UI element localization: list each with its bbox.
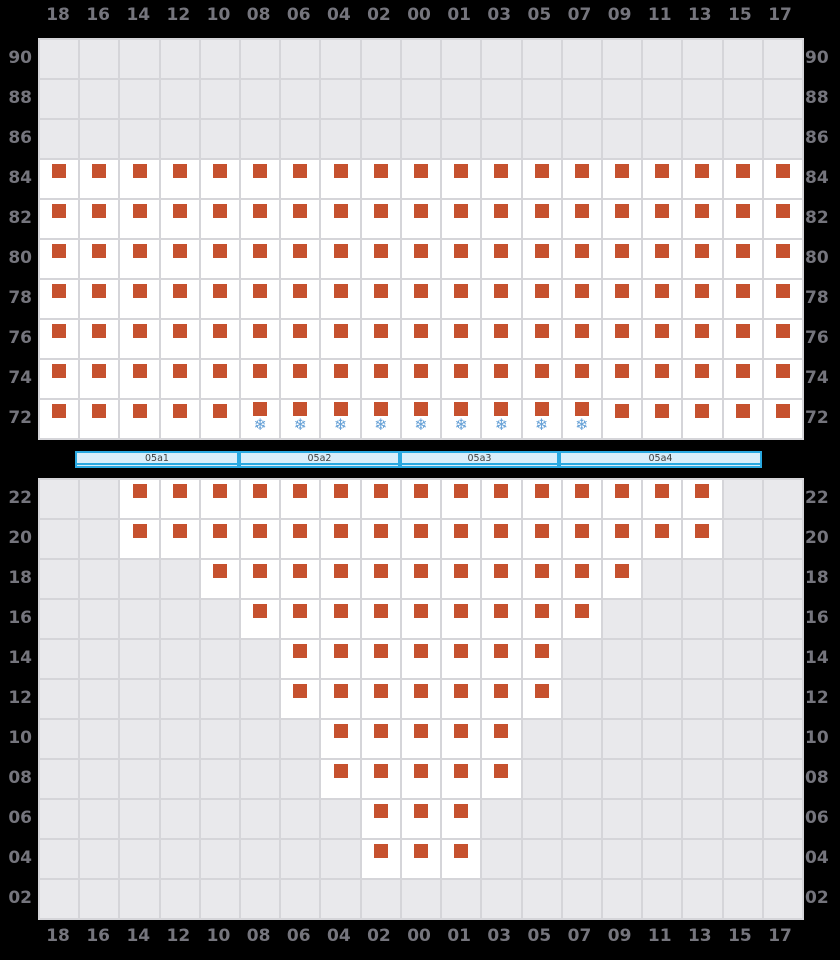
plot-marker xyxy=(293,364,307,378)
grid-cell[interactable] xyxy=(603,480,643,520)
grid-cell[interactable] xyxy=(362,760,402,800)
grid-cell[interactable] xyxy=(442,800,482,840)
grid-cell[interactable] xyxy=(482,240,522,280)
grid-cell[interactable] xyxy=(241,320,281,360)
grid-cell[interactable] xyxy=(201,240,241,280)
grid-cell[interactable] xyxy=(563,480,603,520)
grid-cell[interactable] xyxy=(241,280,281,320)
grid-cell[interactable] xyxy=(321,360,361,400)
grid-cell[interactable] xyxy=(281,200,321,240)
grid-cell xyxy=(563,720,603,760)
grid-cell xyxy=(281,800,321,840)
grid-cell[interactable] xyxy=(764,160,804,200)
grid-cell[interactable]: ❄ xyxy=(281,400,321,440)
grid-cell[interactable] xyxy=(241,480,281,520)
plot-marker xyxy=(52,204,66,218)
grid-cell[interactable] xyxy=(281,320,321,360)
grid-cell[interactable] xyxy=(80,160,120,200)
grid-cell[interactable] xyxy=(321,760,361,800)
grid-cell[interactable] xyxy=(241,360,281,400)
grid-cell[interactable] xyxy=(402,640,442,680)
grid-cell[interactable] xyxy=(161,400,201,440)
grid-cell[interactable] xyxy=(442,640,482,680)
grid-cell[interactable] xyxy=(402,480,442,520)
grid-cell[interactable] xyxy=(402,720,442,760)
grid-cell[interactable] xyxy=(120,360,160,400)
grid-cell[interactable] xyxy=(523,600,563,640)
plot-marker xyxy=(615,564,629,578)
row-label: 84 xyxy=(0,158,34,198)
grid-cell[interactable] xyxy=(80,200,120,240)
grid-cell xyxy=(201,720,241,760)
grid-cell[interactable]: ❄ xyxy=(321,400,361,440)
grid-cell[interactable] xyxy=(603,360,643,400)
grid-cell[interactable] xyxy=(402,600,442,640)
grid-cell xyxy=(120,600,160,640)
grid-cell[interactable] xyxy=(201,560,241,600)
grid-cell[interactable] xyxy=(321,280,361,320)
plot-marker xyxy=(615,484,629,498)
grid-cell[interactable]: ❄ xyxy=(402,400,442,440)
grid-cell[interactable] xyxy=(120,520,160,560)
grid-cell xyxy=(321,40,361,80)
grid-cell[interactable] xyxy=(482,320,522,360)
grid-cell[interactable] xyxy=(442,520,482,560)
grid-cell[interactable] xyxy=(281,640,321,680)
grid-cell[interactable] xyxy=(201,320,241,360)
grid-cell[interactable] xyxy=(241,560,281,600)
grid-cell[interactable] xyxy=(402,240,442,280)
grid-cell[interactable] xyxy=(120,240,160,280)
grid-cell[interactable] xyxy=(683,280,723,320)
grid-cell[interactable] xyxy=(402,840,442,880)
grid-cell[interactable] xyxy=(281,680,321,720)
grid-cell xyxy=(80,680,120,720)
grid-cell[interactable] xyxy=(482,160,522,200)
grid-cell[interactable] xyxy=(161,200,201,240)
grid-cell[interactable] xyxy=(241,240,281,280)
grid-cell[interactable] xyxy=(603,200,643,240)
section-bar: 05a105a205a305a4 xyxy=(0,451,840,468)
plot-marker xyxy=(374,524,388,538)
plot-marker xyxy=(655,164,669,178)
grid-cell xyxy=(402,40,442,80)
grid-cell[interactable] xyxy=(321,720,361,760)
grid-cell[interactable] xyxy=(120,480,160,520)
grid-cell[interactable] xyxy=(643,480,683,520)
grid-cell[interactable] xyxy=(40,280,80,320)
grid-cell[interactable] xyxy=(362,200,402,240)
grid-cell xyxy=(764,800,804,840)
grid-cell[interactable] xyxy=(523,160,563,200)
grid-cell[interactable] xyxy=(40,400,80,440)
grid-cell[interactable] xyxy=(442,320,482,360)
grid-cell[interactable] xyxy=(362,240,402,280)
grid-cell xyxy=(563,120,603,160)
plot-marker xyxy=(454,564,468,578)
grid-cell[interactable] xyxy=(80,240,120,280)
grid-cell[interactable] xyxy=(482,280,522,320)
grid-cell[interactable] xyxy=(603,160,643,200)
grid-cell[interactable] xyxy=(321,240,361,280)
grid-cell[interactable] xyxy=(643,320,683,360)
plot-marker xyxy=(736,324,750,338)
grid-cell[interactable] xyxy=(764,400,804,440)
row-label: 06 xyxy=(0,798,34,838)
grid-cell[interactable] xyxy=(161,280,201,320)
grid-cell[interactable] xyxy=(362,680,402,720)
plot-marker xyxy=(213,164,227,178)
grid-cell[interactable] xyxy=(321,160,361,200)
grid-cell[interactable] xyxy=(563,600,603,640)
section-segment-05a4[interactable]: 05a4 xyxy=(559,451,762,468)
grid-cell[interactable] xyxy=(40,160,80,200)
grid-cell[interactable] xyxy=(482,200,522,240)
row-label: 74 xyxy=(805,358,839,398)
grid-cell[interactable] xyxy=(40,200,80,240)
grid-cell[interactable] xyxy=(402,680,442,720)
grid-cell[interactable] xyxy=(482,600,522,640)
grid-cell[interactable] xyxy=(362,840,402,880)
grid-cell[interactable] xyxy=(724,320,764,360)
grid-cell[interactable] xyxy=(120,160,160,200)
grid-cell[interactable] xyxy=(201,520,241,560)
grid-cell[interactable] xyxy=(161,160,201,200)
grid-cell[interactable] xyxy=(724,360,764,400)
grid-cell[interactable] xyxy=(603,520,643,560)
grid-cell[interactable] xyxy=(362,600,402,640)
grid-cell[interactable] xyxy=(643,400,683,440)
grid-cell[interactable] xyxy=(281,560,321,600)
row-label: 78 xyxy=(0,278,34,318)
grid-cell[interactable] xyxy=(442,720,482,760)
grid-cell[interactable] xyxy=(724,240,764,280)
grid-cell[interactable] xyxy=(40,360,80,400)
grid-cell[interactable] xyxy=(523,240,563,280)
grid-cell[interactable] xyxy=(523,360,563,400)
grid-cell[interactable] xyxy=(201,200,241,240)
grid-cell[interactable] xyxy=(643,160,683,200)
grid-cell[interactable] xyxy=(482,680,522,720)
grid-cell[interactable] xyxy=(80,400,120,440)
plot-marker xyxy=(213,564,227,578)
column-label: 11 xyxy=(640,0,680,30)
grid-cell[interactable] xyxy=(161,480,201,520)
grid-cell[interactable] xyxy=(281,480,321,520)
grid-cell xyxy=(241,880,281,920)
grid-cell[interactable] xyxy=(683,240,723,280)
grid-cell[interactable]: ❄ xyxy=(241,400,281,440)
grid-cell[interactable] xyxy=(563,360,603,400)
grid-cell[interactable] xyxy=(241,600,281,640)
grid-cell[interactable] xyxy=(643,240,683,280)
grid-cell[interactable] xyxy=(120,320,160,360)
grid-cell[interactable] xyxy=(201,280,241,320)
grid-cell[interactable] xyxy=(563,520,603,560)
grid-cell[interactable]: ❄ xyxy=(563,400,603,440)
grid-cell[interactable] xyxy=(362,320,402,360)
grid-cell[interactable] xyxy=(281,160,321,200)
section-segment-05a3[interactable]: 05a3 xyxy=(400,451,559,468)
plot-marker xyxy=(454,604,468,618)
grid-cell[interactable] xyxy=(362,520,402,560)
grid-cell[interactable] xyxy=(523,480,563,520)
grid-cell[interactable] xyxy=(764,280,804,320)
grid-cell[interactable] xyxy=(362,640,402,680)
grid-cell[interactable] xyxy=(402,360,442,400)
grid-cell[interactable] xyxy=(321,680,361,720)
grid-cell[interactable] xyxy=(563,280,603,320)
grid-cell xyxy=(80,600,120,640)
section-segment-05a1[interactable]: 05a1 xyxy=(75,451,239,468)
grid-cell[interactable] xyxy=(120,200,160,240)
grid-cell[interactable] xyxy=(80,360,120,400)
grid-cell[interactable] xyxy=(603,320,643,360)
grid-cell[interactable] xyxy=(683,360,723,400)
grid-cell[interactable] xyxy=(241,200,281,240)
row-label: 88 xyxy=(805,78,839,118)
grid-cell[interactable] xyxy=(764,200,804,240)
plot-marker xyxy=(414,844,428,858)
grid-cell[interactable] xyxy=(482,480,522,520)
plot-marker xyxy=(133,364,147,378)
grid-cell[interactable] xyxy=(321,600,361,640)
plot-marker xyxy=(575,324,589,338)
plot-marker xyxy=(374,402,388,416)
grid-cell[interactable] xyxy=(40,320,80,360)
grid-cell[interactable] xyxy=(724,400,764,440)
plot-marker xyxy=(575,204,589,218)
grid-cell[interactable] xyxy=(603,240,643,280)
column-label: 17 xyxy=(760,0,800,30)
row-label: 18 xyxy=(805,558,839,598)
plot-marker xyxy=(334,724,348,738)
grid-cell[interactable] xyxy=(442,680,482,720)
grid-cell[interactable] xyxy=(201,360,241,400)
grid-cell[interactable] xyxy=(482,760,522,800)
grid-cell[interactable] xyxy=(321,200,361,240)
grid-cell[interactable] xyxy=(643,520,683,560)
grid-cell xyxy=(724,760,764,800)
plot-marker xyxy=(92,244,106,258)
grid-cell[interactable] xyxy=(402,800,442,840)
grid-cell xyxy=(764,560,804,600)
grid-cell[interactable] xyxy=(362,360,402,400)
grid-cell[interactable] xyxy=(281,600,321,640)
grid-cell[interactable] xyxy=(402,560,442,600)
plot-marker xyxy=(615,404,629,418)
grid-cell[interactable] xyxy=(563,240,603,280)
plot-marker xyxy=(133,244,147,258)
plot-marker xyxy=(133,484,147,498)
grid-cell[interactable] xyxy=(523,640,563,680)
plot-marker xyxy=(494,484,508,498)
grid-cell[interactable] xyxy=(281,280,321,320)
grid-cell[interactable] xyxy=(362,280,402,320)
plot-marker xyxy=(414,644,428,658)
grid-cell[interactable] xyxy=(764,360,804,400)
grid-cell[interactable] xyxy=(683,480,723,520)
grid-cell[interactable] xyxy=(161,520,201,560)
grid-cell[interactable] xyxy=(321,640,361,680)
grid-cell[interactable] xyxy=(161,320,201,360)
grid-cell[interactable] xyxy=(442,240,482,280)
grid-cell[interactable] xyxy=(40,240,80,280)
snowflake-icon: ❄ xyxy=(455,416,468,433)
grid-cell[interactable] xyxy=(523,680,563,720)
grid-cell xyxy=(764,760,804,800)
grid-cell[interactable] xyxy=(362,480,402,520)
grid-cell[interactable] xyxy=(402,200,442,240)
plot-marker xyxy=(776,324,790,338)
grid-cell[interactable] xyxy=(442,160,482,200)
column-label: 17 xyxy=(760,921,800,951)
grid-cell[interactable]: ❄ xyxy=(362,400,402,440)
grid-cell xyxy=(402,880,442,920)
grid-cell xyxy=(683,800,723,840)
grid-cell[interactable] xyxy=(683,400,723,440)
grid-cell[interactable] xyxy=(442,600,482,640)
grid-cell[interactable] xyxy=(523,520,563,560)
grid-cell[interactable] xyxy=(523,560,563,600)
plot-marker xyxy=(293,684,307,698)
plot-marker xyxy=(374,164,388,178)
grid-cell[interactable] xyxy=(563,560,603,600)
grid-cell[interactable] xyxy=(683,520,723,560)
grid-cell[interactable] xyxy=(241,160,281,200)
grid-cell[interactable]: ❄ xyxy=(442,400,482,440)
grid-cell[interactable] xyxy=(80,280,120,320)
column-label: 12 xyxy=(158,921,198,951)
row-label: 04 xyxy=(0,838,34,878)
grid-cell[interactable] xyxy=(80,320,120,360)
grid-cell[interactable] xyxy=(482,720,522,760)
plot-marker xyxy=(454,284,468,298)
grid-cell[interactable] xyxy=(161,240,201,280)
grid-cell[interactable] xyxy=(402,760,442,800)
grid-cell[interactable] xyxy=(362,800,402,840)
grid-cell[interactable]: ❄ xyxy=(523,400,563,440)
grid-cell[interactable] xyxy=(563,200,603,240)
grid-cell[interactable] xyxy=(281,520,321,560)
grid-cell[interactable] xyxy=(442,360,482,400)
grid-cell[interactable] xyxy=(563,320,603,360)
grid-cell[interactable] xyxy=(161,360,201,400)
grid-cell[interactable] xyxy=(402,160,442,200)
lower-left-row-axis: 2220181614121008060402 xyxy=(0,478,34,918)
column-label: 03 xyxy=(479,921,519,951)
grid-cell[interactable] xyxy=(120,280,160,320)
grid-cell[interactable] xyxy=(442,560,482,600)
grid-cell[interactable] xyxy=(563,160,603,200)
grid-cell[interactable] xyxy=(321,520,361,560)
grid-cell xyxy=(241,800,281,840)
plot-marker xyxy=(615,204,629,218)
grid-cell[interactable] xyxy=(482,520,522,560)
grid-cell[interactable]: ❄ xyxy=(482,400,522,440)
grid-cell[interactable] xyxy=(201,400,241,440)
row-label: 02 xyxy=(0,878,34,918)
grid-cell[interactable] xyxy=(683,320,723,360)
grid-cell[interactable] xyxy=(724,200,764,240)
grid-cell[interactable] xyxy=(603,400,643,440)
plot-marker xyxy=(535,484,549,498)
grid-cell[interactable] xyxy=(683,200,723,240)
plot-marker xyxy=(253,324,267,338)
grid-cell[interactable] xyxy=(724,280,764,320)
grid-cell[interactable] xyxy=(120,400,160,440)
grid-cell[interactable] xyxy=(603,280,643,320)
grid-cell[interactable] xyxy=(643,280,683,320)
top-column-axis: 18161412100806040200010305070911131517 xyxy=(38,0,800,30)
grid-cell xyxy=(643,840,683,880)
grid-cell xyxy=(563,840,603,880)
grid-cell[interactable] xyxy=(362,560,402,600)
grid-cell[interactable] xyxy=(201,160,241,200)
plot-marker xyxy=(655,244,669,258)
grid-cell[interactable] xyxy=(724,160,764,200)
grid-cell[interactable] xyxy=(603,560,643,600)
grid-cell[interactable] xyxy=(321,480,361,520)
grid-cell xyxy=(724,640,764,680)
grid-cell[interactable] xyxy=(402,280,442,320)
plot-marker xyxy=(776,364,790,378)
grid-cell[interactable] xyxy=(201,480,241,520)
grid-cell xyxy=(683,880,723,920)
grid-cell[interactable] xyxy=(321,320,361,360)
grid-cell[interactable] xyxy=(482,360,522,400)
grid-cell[interactable] xyxy=(362,160,402,200)
grid-cell[interactable] xyxy=(241,520,281,560)
grid-cell[interactable] xyxy=(402,520,442,560)
row-label: 82 xyxy=(0,198,34,238)
grid-cell xyxy=(120,80,160,120)
grid-cell[interactable] xyxy=(281,240,321,280)
grid-cell[interactable] xyxy=(442,480,482,520)
grid-cell xyxy=(523,880,563,920)
grid-cell xyxy=(523,760,563,800)
grid-cell[interactable] xyxy=(643,360,683,400)
column-label: 01 xyxy=(439,0,479,30)
grid-cell[interactable] xyxy=(764,240,804,280)
snowflake-icon: ❄ xyxy=(495,416,508,433)
grid-cell xyxy=(40,800,80,840)
grid-cell xyxy=(764,600,804,640)
grid-cell[interactable] xyxy=(281,360,321,400)
grid-cell[interactable] xyxy=(442,760,482,800)
grid-cell[interactable] xyxy=(321,560,361,600)
plot-marker xyxy=(736,364,750,378)
plot-marker xyxy=(374,684,388,698)
grid-cell[interactable] xyxy=(523,320,563,360)
grid-cell[interactable] xyxy=(442,280,482,320)
grid-cell xyxy=(120,560,160,600)
grid-cell[interactable] xyxy=(683,160,723,200)
grid-cell xyxy=(643,880,683,920)
grid-cell xyxy=(120,640,160,680)
grid-cell[interactable] xyxy=(362,720,402,760)
grid-cell[interactable] xyxy=(523,200,563,240)
grid-cell[interactable] xyxy=(523,280,563,320)
grid-cell[interactable] xyxy=(442,200,482,240)
grid-cell[interactable] xyxy=(482,560,522,600)
grid-cell[interactable] xyxy=(402,320,442,360)
grid-cell[interactable] xyxy=(482,640,522,680)
grid-cell[interactable] xyxy=(643,200,683,240)
grid-cell[interactable] xyxy=(764,320,804,360)
grid-cell[interactable] xyxy=(442,840,482,880)
section-segment-05a2[interactable]: 05a2 xyxy=(239,451,400,468)
